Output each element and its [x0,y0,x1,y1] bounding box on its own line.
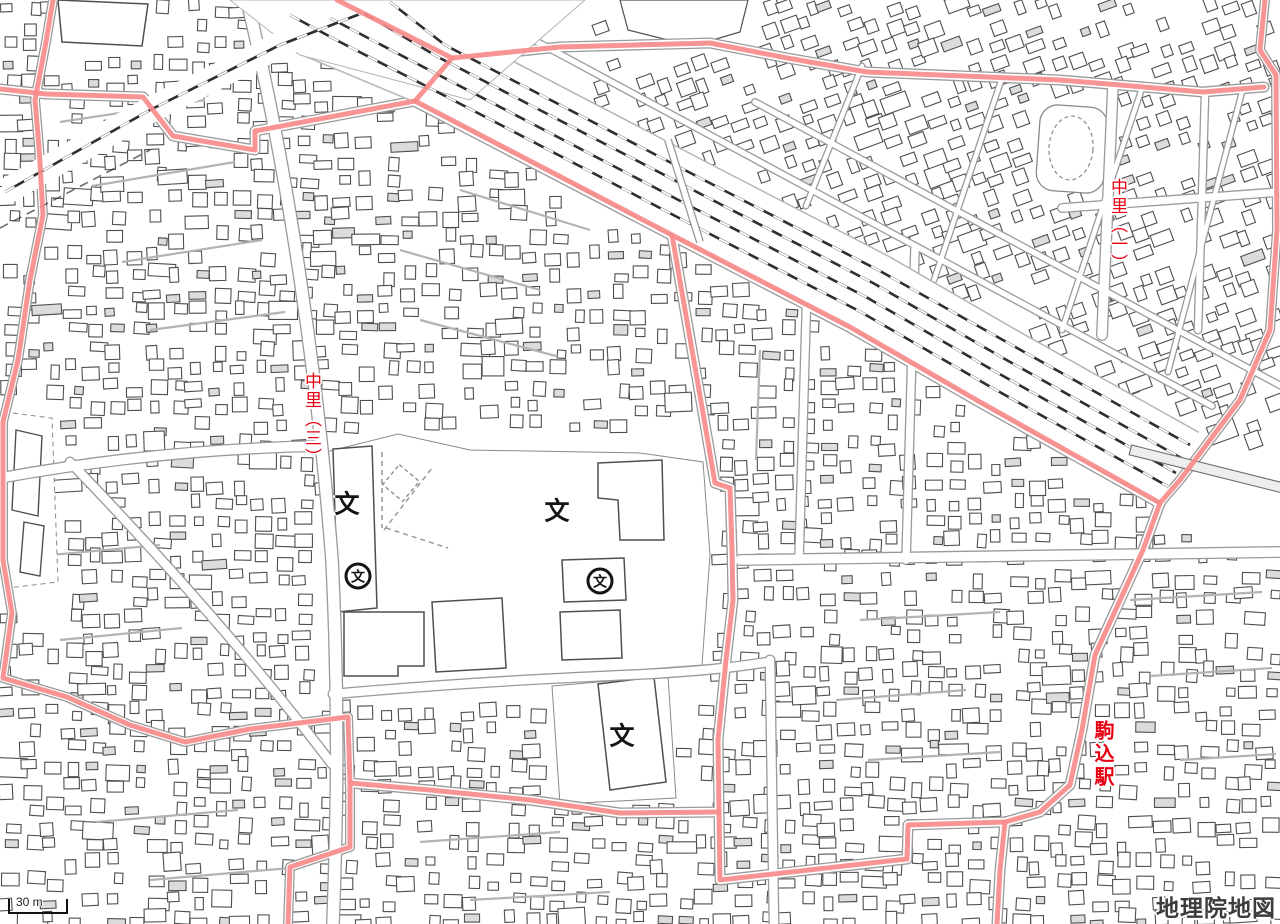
place-label-nakazato-3: 中里（三） [303,372,320,467]
place-label-komagome-station: 駒込駅 [1092,720,1112,789]
school-icon: 文 [609,725,634,750]
school-icon: 文 [544,500,569,525]
scale-bar-label: 30 m [16,895,43,909]
place-label-nakazato-1: 中里（一） [1109,178,1126,273]
school-icon: 文 [334,493,359,518]
map-canvas[interactable] [0,0,1280,924]
attribution-link[interactable]: 地理院地図 [1156,889,1276,923]
high-school-icon: 文 [345,563,372,590]
high-school-icon: 文 [587,568,614,595]
scale-bar: 30 m [8,899,68,914]
map-viewport[interactable]: 中里（三） 中里（一） 駒込駅 文 文 文 文 文 30 m 地理院地図 [0,0,1280,924]
